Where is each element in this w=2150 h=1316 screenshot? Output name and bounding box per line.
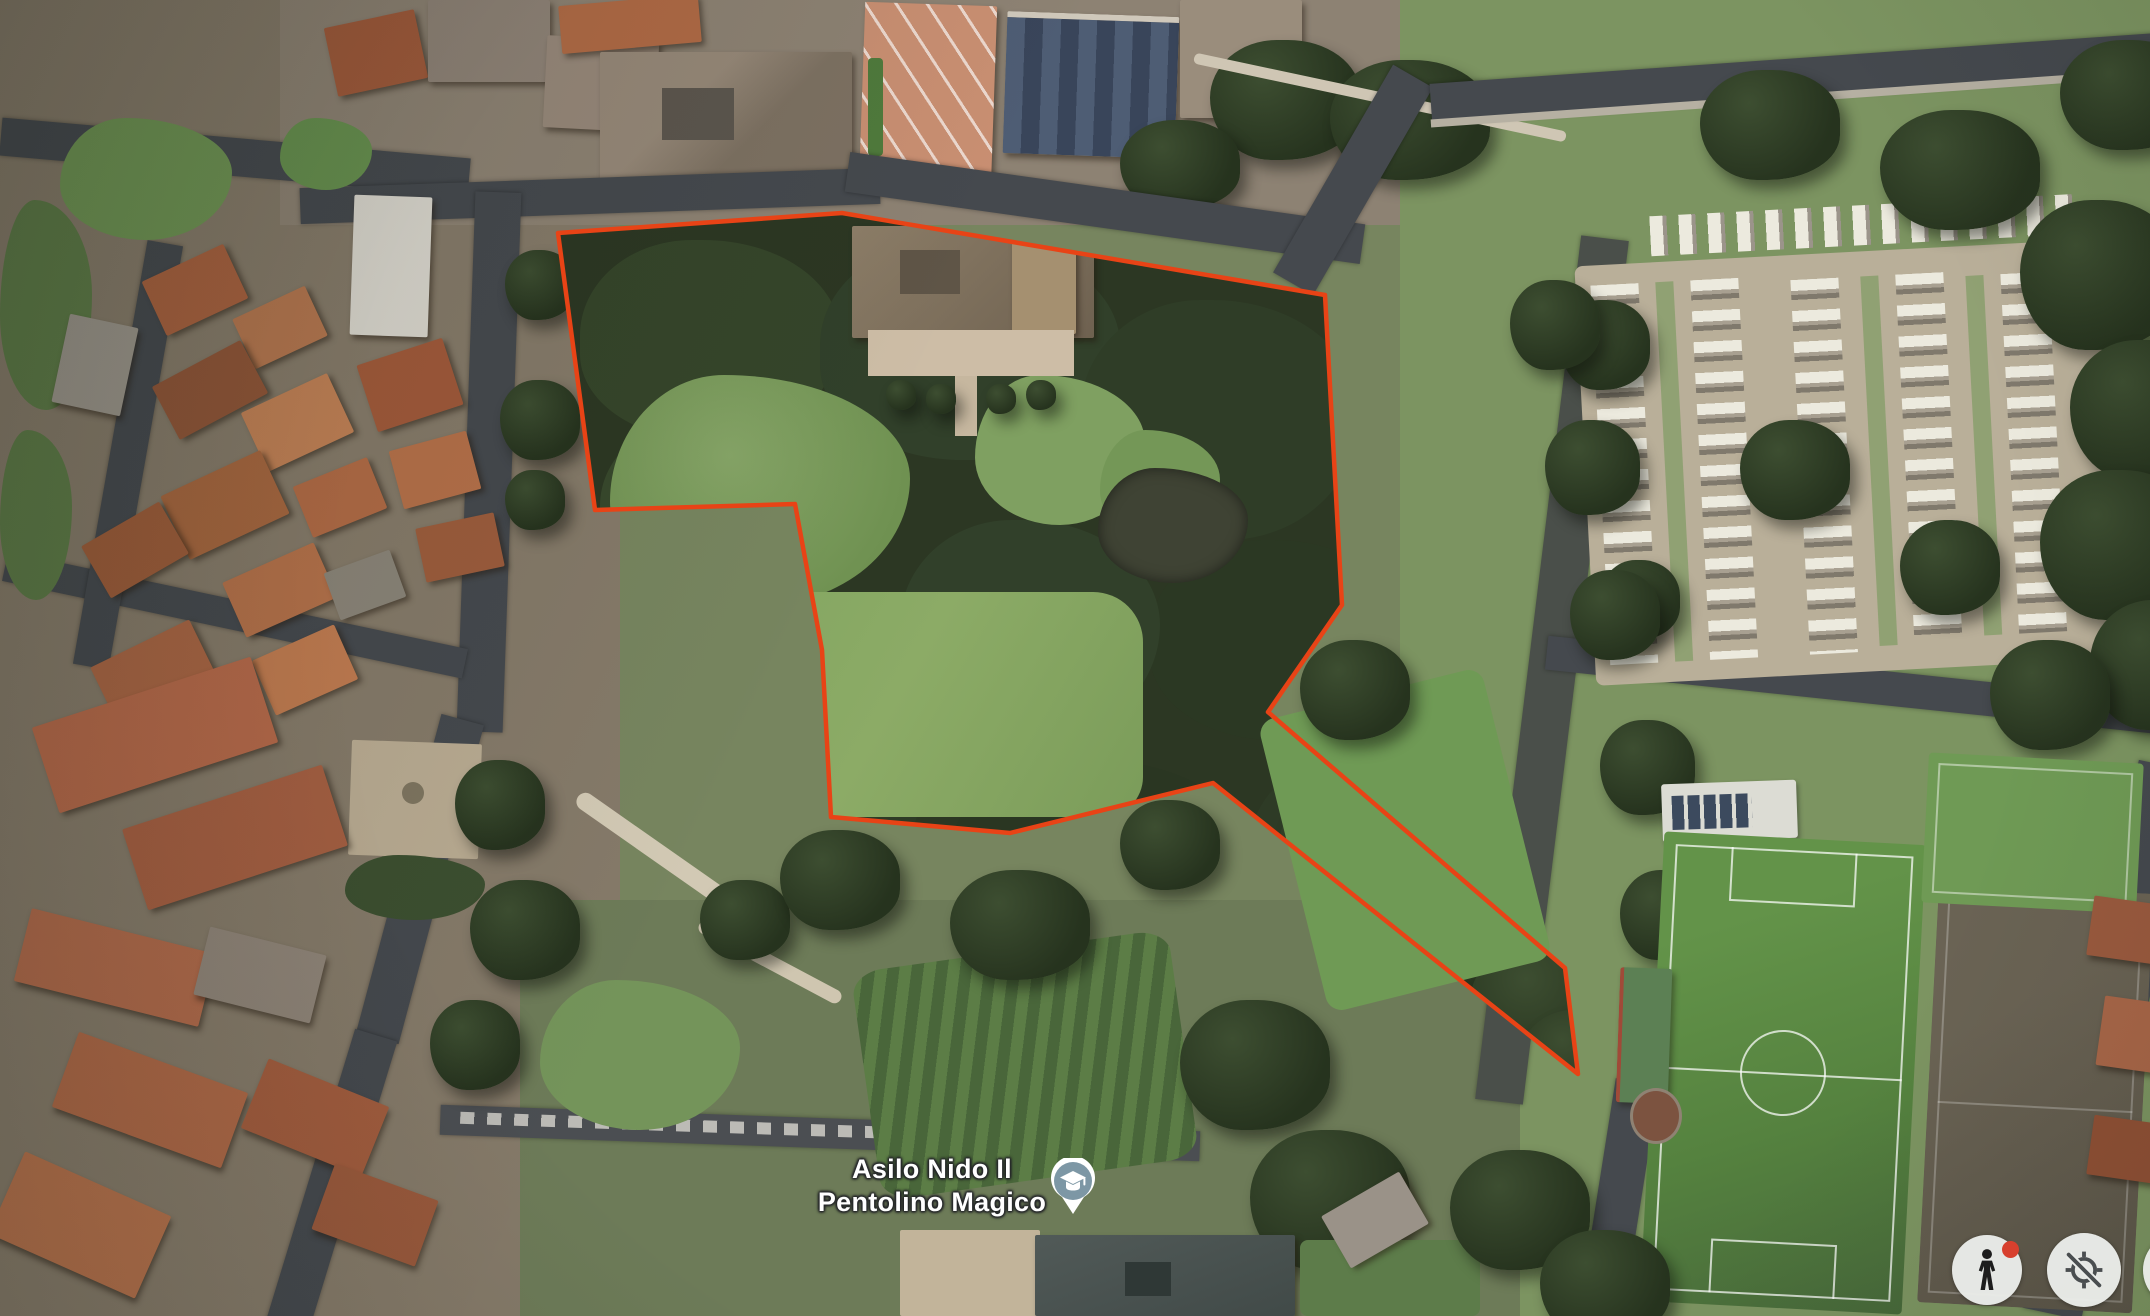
pegman-icon [1969, 1248, 2005, 1292]
satellite-map[interactable]: Asilo Nido Il Pentolino Magico [0, 0, 2150, 1316]
location-disabled-icon [2061, 1247, 2107, 1293]
street-view-pegman-button[interactable] [1952, 1235, 2022, 1305]
school-poi-marker[interactable] [1049, 1158, 1097, 1216]
pegman-notification-badge [2002, 1241, 2019, 1258]
satellite-imagery [0, 0, 2150, 1316]
compass-location-button[interactable] [2047, 1233, 2121, 1307]
